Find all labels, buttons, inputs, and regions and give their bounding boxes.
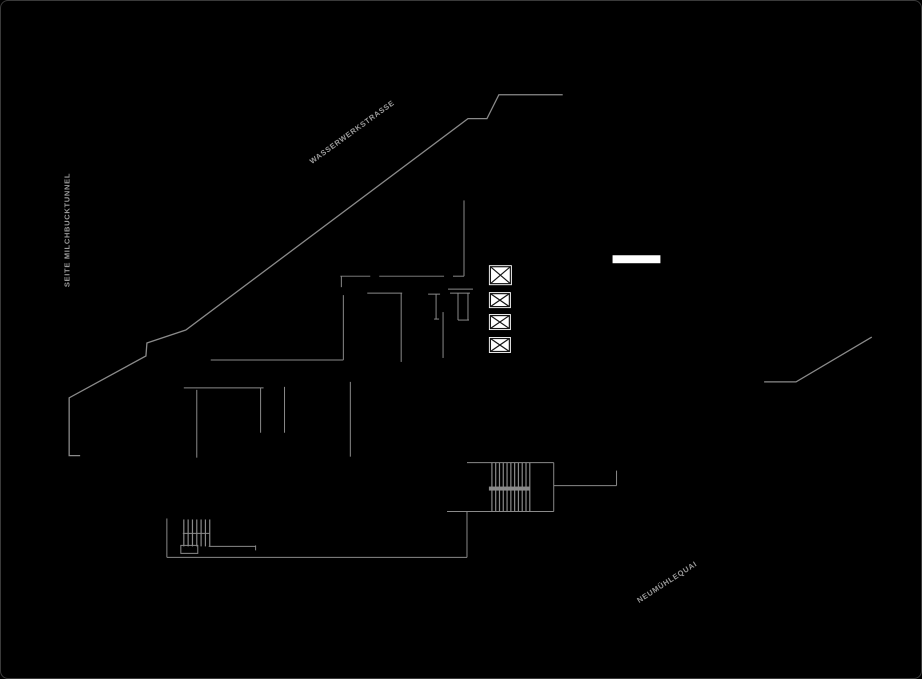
road-label-seite-milchbucktunnel: SEITE MILCHBUCKTUNNEL bbox=[63, 173, 72, 287]
plan-viewport: WASSERWERKSTRASSE SEITE MILCHBUCKTUNNEL … bbox=[0, 0, 922, 679]
road-edge-neumuehlequai bbox=[764, 337, 872, 382]
white-marker-bar bbox=[613, 255, 661, 263]
floor-plan-svg bbox=[1, 1, 921, 678]
stair-landing-bar bbox=[489, 487, 530, 491]
road-edge-wasserwerkstrasse bbox=[69, 95, 563, 456]
small-stair-landing bbox=[181, 545, 198, 553]
